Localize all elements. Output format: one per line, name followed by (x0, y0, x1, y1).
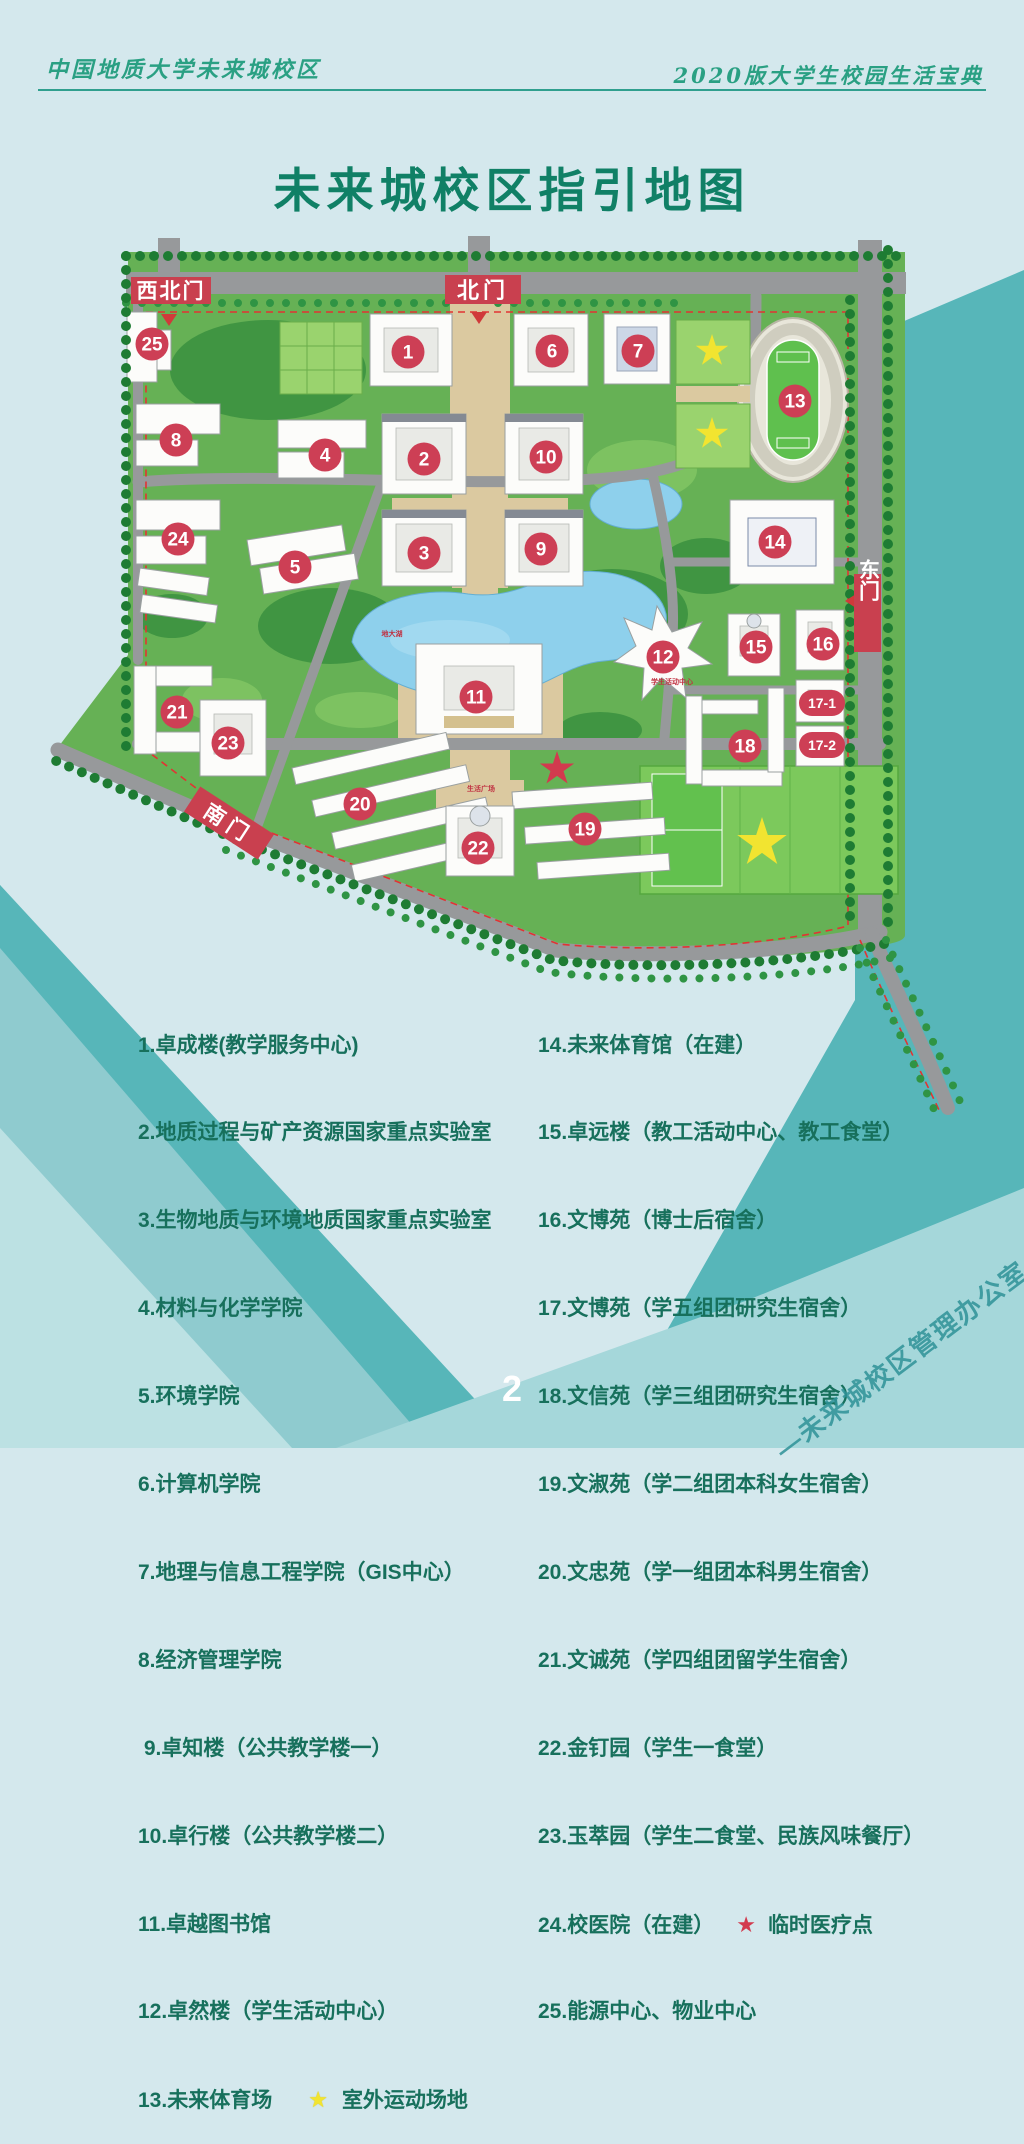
page-title: 未来城校区指引地图 (0, 152, 1024, 221)
svg-text:北门: 北门 (457, 278, 509, 303)
svg-text:24: 24 (167, 530, 189, 551)
red-star-icon: ★ (736, 1912, 756, 1937)
header-divider (38, 89, 986, 91)
svg-text:8: 8 (171, 431, 182, 452)
map-marker-15: 15 (740, 631, 773, 664)
lake-label: 地大湖 (382, 629, 403, 638)
svg-text:1: 1 (403, 343, 414, 364)
svg-text:13: 13 (784, 392, 805, 413)
svg-text:23: 23 (217, 734, 238, 755)
legend-item-with-star: 13.未来体育场★室外运动场地 (138, 2085, 492, 2114)
yellow-star-icon: ★ (308, 2087, 328, 2112)
legend-right-column: 14.未来体育馆（在建） 15.卓远楼（教工活动中心、教工食堂） 16.文博苑（… (538, 972, 924, 2056)
map-marker-5: 5 (279, 551, 312, 584)
legend-item: 4.材料与化学学院 (138, 1294, 492, 1323)
svg-text:3: 3 (419, 544, 430, 565)
svg-text:7: 7 (633, 342, 644, 363)
legend-item: 17.文博苑（学五组团研究生宿舍） (538, 1294, 924, 1323)
legend-item: 16.文博苑（博士后宿舍） (538, 1206, 924, 1235)
map-marker-2: 2 (408, 443, 441, 476)
map-marker-23: 23 (212, 727, 245, 760)
map-marker-18: 18 (729, 730, 762, 763)
svg-text:10: 10 (535, 448, 556, 469)
legend-item: 19.文淑苑（学二组团本科女生宿舍） (538, 1470, 924, 1499)
svg-text:14: 14 (764, 533, 786, 554)
legend-item: 22.金钉园（学生一食堂） (538, 1734, 924, 1763)
life-plaza-label: 生活广场 (467, 784, 495, 793)
map-marker-13: 13 (779, 385, 812, 418)
legend-item: 23.玉萃园（学生二食堂、民族风味餐厅） (538, 1822, 924, 1851)
map-marker-16: 16 (807, 628, 840, 661)
svg-text:2: 2 (419, 450, 430, 471)
map-marker-10: 10 (530, 441, 563, 474)
map-marker-12: 12 (647, 641, 680, 674)
legend-item: 11.卓越图书馆 (138, 1910, 492, 1939)
svg-text:9: 9 (536, 540, 547, 561)
header-left-title: 中国地质大学未来城校区 (46, 52, 321, 84)
map-marker-19: 19 (569, 813, 602, 846)
legend-item: 8.经济管理学院 (138, 1646, 492, 1675)
legend-item: 6.计算机学院 (138, 1470, 492, 1499)
map-marker-17-1: 17-1 (799, 690, 845, 716)
svg-text:4: 4 (320, 446, 331, 467)
map-marker-4: 4 (309, 439, 342, 472)
svg-text:17-2: 17-2 (808, 737, 836, 753)
svg-text:19: 19 (574, 820, 595, 841)
map-marker-17-2: 17-2 (799, 732, 845, 758)
map-marker-11: 11 (460, 681, 493, 714)
map-marker-1: 1 (392, 336, 425, 369)
svg-text:21: 21 (166, 703, 188, 724)
svg-text:5: 5 (290, 558, 301, 579)
map-marker-20: 20 (344, 788, 377, 821)
page-header: 中国地质大学未来城校区 2020版大学生校园生活宝典 (38, 48, 986, 88)
legend-item-with-star: 24.校医院（在建）★临时医疗点 (538, 1910, 924, 1939)
legend-item: 10.卓行楼（公共教学楼二） (138, 1822, 492, 1851)
page-number: 2 (0, 1368, 1024, 1410)
map-marker-25: 25 (136, 328, 169, 361)
svg-text:西北门: 西北门 (137, 279, 206, 303)
gate-east: 东门 (854, 558, 881, 652)
svg-text:25: 25 (141, 335, 163, 356)
legend-item: 9.卓知楼（公共教学楼一） (138, 1734, 492, 1763)
gate-northwest: 西北门 (131, 277, 211, 304)
svg-text:11: 11 (466, 688, 487, 709)
svg-text:17-1: 17-1 (808, 695, 836, 711)
header-right-title: 2020版大学生校园生活宝典 (674, 60, 984, 90)
svg-text:15: 15 (745, 638, 767, 659)
svg-text:东门: 东门 (857, 558, 881, 601)
legend-item: 3.生物地质与环境地质国家重点实验室 (138, 1206, 492, 1235)
map-marker-9: 9 (525, 533, 558, 566)
legend-left-column: 1.卓成楼(教学服务中心) 2.地质过程与矿产资源国家重点实验室 3.生物地质与… (138, 972, 492, 2144)
legend-item: 25.能源中心、物业中心 (538, 1997, 924, 2026)
svg-text:20: 20 (349, 795, 370, 816)
svg-text:6: 6 (547, 342, 558, 363)
practice-courts (676, 320, 750, 468)
map-marker-8: 8 (160, 424, 193, 457)
legend-item: 21.文诚苑（学四组团留学生宿舍） (538, 1646, 924, 1675)
legend-item: 2.地质过程与矿产资源国家重点实验室 (138, 1118, 492, 1147)
map-marker-24: 24 (162, 523, 195, 556)
svg-text:18: 18 (734, 737, 755, 758)
map-marker-3: 3 (408, 537, 441, 570)
legend-item: 12.卓然楼（学生活动中心） (138, 1997, 492, 2026)
svg-text:16: 16 (812, 635, 833, 656)
legend-item: 20.文忠苑（学一组团本科男生宿舍） (538, 1558, 924, 1587)
legend-item: 14.未来体育馆（在建） (538, 1031, 924, 1060)
svg-text:12: 12 (652, 648, 673, 669)
map-marker-21: 21 (161, 696, 194, 729)
map-marker-7: 7 (622, 335, 655, 368)
svg-text:22: 22 (467, 839, 488, 860)
legend-item: 1.卓成楼(教学服务中心) (138, 1031, 492, 1060)
gate-north: 北门 (445, 275, 521, 304)
map-marker-14: 14 (759, 526, 792, 559)
map-marker-6: 6 (536, 335, 569, 368)
legend-item: 15.卓远楼（教工活动中心、教工食堂） (538, 1118, 924, 1147)
legend-item: 7.地理与信息工程学院（GIS中心） (138, 1558, 492, 1587)
student-center-label: 学生活动中心 (651, 677, 693, 686)
nw-garden (280, 322, 362, 394)
map-marker-22: 22 (462, 832, 495, 865)
